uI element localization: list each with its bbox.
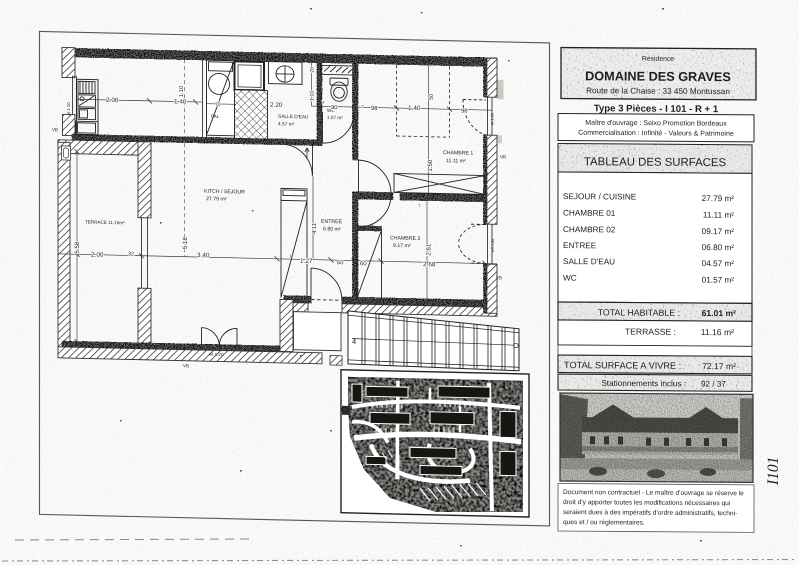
svg-text:ques et / ou réglementaires.: ques et / ou réglementaires. [563,519,645,527]
svg-text:TOTAL SURFACE A VIVRE :: TOTAL SURFACE A VIVRE : [564,360,681,371]
svg-text:TERRASSE :: TERRASSE : [625,326,676,336]
svg-text:2.61: 2.61 [426,243,433,256]
svg-text:2.00: 2.00 [106,97,119,104]
svg-text:Type 3 Pièces - I 101 - R +: Type 3 Pièces - I 101 - R + 1 [594,103,719,115]
svg-text:1.10: 1.10 [310,91,316,102]
svg-text:Stationnements inclus :: Stationnements inclus : [601,379,686,389]
svg-text:4: 4 [352,337,356,346]
svg-text:20: 20 [310,67,316,73]
svg-text:VB: VB [500,154,506,159]
svg-text:CHAMBRE 02: CHAMBRE 02 [563,225,616,234]
svg-text:AI 1 20: AI 1 20 [66,102,71,116]
svg-text:2.68: 2.68 [423,261,436,268]
svg-text:5.58: 5.58 [74,241,81,254]
svg-text:ENTREE: ENTREE [563,241,597,250]
svg-text:60: 60 [337,260,343,266]
svg-text:VB: VB [183,363,189,368]
svg-text:9.17 m²: 9.17 m² [393,243,411,249]
svg-text:Maître d'ouvrage : Seixo Promo: Maître d'ouvrage : Seixo Promotion Borde… [585,120,727,128]
svg-text:droit d'y apporter toutes les: droit d'y apporter toutes les modificati… [563,499,731,507]
svg-text:01.57 m²: 01.57 m² [702,276,735,285]
svg-text:VB: VB [496,275,502,280]
svg-text:I101: I101 [765,457,782,486]
svg-text:CHAMBRE 01: CHAMBRE 01 [563,209,616,218]
svg-text:09.17 m²: 09.17 m² [702,227,735,236]
svg-text:SEJOUR / CUISINE: SEJOUR / CUISINE [563,192,637,202]
svg-text:3.40: 3.40 [197,252,210,259]
svg-text:DOMAINE DES GRAVES: DOMAINE DES GRAVES [585,69,731,84]
svg-text:CHAMBRE 1: CHAMBRE 1 [443,150,473,157]
svg-text:11.11 m²: 11.11 m² [703,211,734,220]
svg-text:60: 60 [360,261,366,267]
svg-text:seraient dues à des impératifs: seraient dues à des impératifs d'ordre a… [563,509,737,517]
svg-text:1.10: 1.10 [179,86,185,97]
svg-text:2.00: 2.00 [91,252,104,259]
svg-text:7: 7 [289,254,292,259]
svg-text:2.20: 2.20 [270,102,283,109]
svg-text:70: 70 [215,102,221,108]
svg-text:1.50: 1.50 [427,159,434,172]
svg-text:ENTREE: ENTREE [321,219,343,225]
svg-text:4.11: 4.11 [312,222,318,234]
svg-text:5.18: 5.18 [182,237,189,250]
svg-text:Route de la Chaise : 33 450 Mo: Route de la Chaise : 33 450 Montussan [586,86,730,96]
svg-text:SALLE D'EAU: SALLE D'EAU [278,114,309,121]
svg-text:1.57 m²: 1.57 m² [327,115,343,120]
svg-text:AI 1.09: AI 1.09 [491,113,495,125]
svg-text:Document non contractuel - Le: Document non contractuel - Le maître d'o… [563,489,744,497]
svg-text:7: 7 [361,104,364,109]
svg-text:04.57 m²: 04.57 m² [702,259,735,268]
svg-text:61.01 m²: 61.01 m² [702,308,737,318]
svg-text:11.16 m²: 11.16 m² [701,327,734,337]
svg-text:Commercialisation : Infinité -: Commercialisation : Infinité - Valeurs &… [578,130,734,138]
svg-text:27.79 m²: 27.79 m² [206,196,227,202]
svg-text:98: 98 [461,108,467,114]
svg-text:Résidence: Résidence [642,56,674,63]
svg-text:32: 32 [128,251,134,257]
svg-text:11.11 m²: 11.11 m² [446,158,466,164]
svg-text:1.27: 1.27 [300,258,313,265]
svg-text:4.57 m²: 4.57 m² [278,121,295,127]
svg-text:KITCH / SEJOUR: KITCH / SEJOUR [204,189,245,196]
svg-text:TERRACE 11.16m²: TERRACE 11.16m² [85,219,125,225]
svg-text:06.80 m²: 06.80 m² [702,243,735,252]
svg-text:72.17 m²: 72.17 m² [702,361,736,371]
svg-text:AI 1.20: AI 1.20 [209,352,224,357]
svg-text:SALLE D'EAU: SALLE D'EAU [563,257,615,266]
svg-text:TABLEAU DES SURFACES: TABLEAU DES SURFACES [584,156,727,169]
svg-text:50: 50 [429,94,435,100]
svg-text:AS 1.60: AS 1.60 [491,239,495,253]
svg-text:1.40: 1.40 [174,98,187,105]
svg-text:6.80 m²: 6.80 m² [323,226,341,232]
svg-text:7: 7 [322,100,325,105]
svg-text:1.40: 1.40 [408,105,421,112]
svg-text:PAL: PAL [211,114,220,119]
svg-text:VB: VB [52,127,58,132]
svg-text:TOTAL HABITABLE :: TOTAL HABITABLE : [598,307,680,318]
svg-text:CHAMBRE 2: CHAMBRE 2 [390,235,420,242]
svg-text:WC: WC [563,274,577,283]
svg-text:98: 98 [371,106,377,112]
svg-text:90: 90 [331,105,337,111]
svg-text:92 / 37: 92 / 37 [701,380,726,389]
svg-text:27.79 m²: 27.79 m² [702,194,735,203]
svg-text:7: 7 [418,203,421,208]
